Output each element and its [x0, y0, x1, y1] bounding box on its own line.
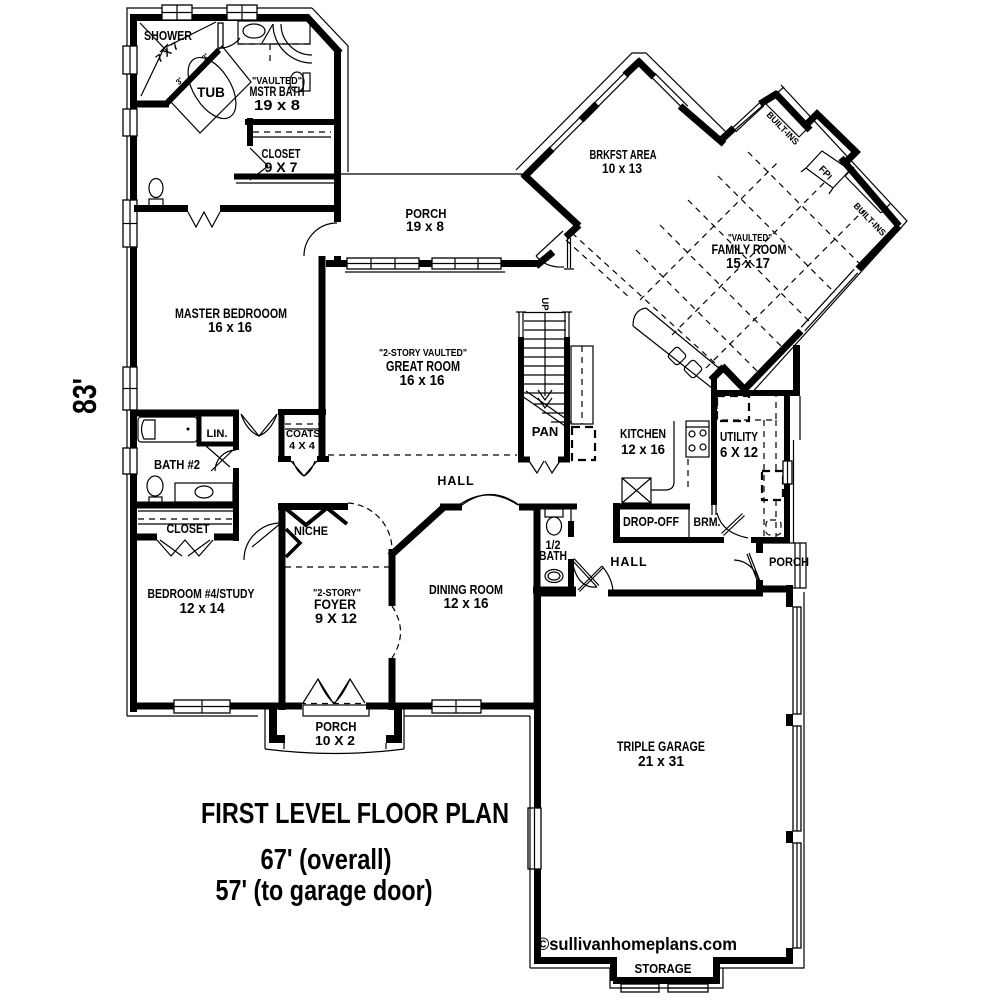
svg-text:BEDROOM #4/STUDY: BEDROOM #4/STUDY: [148, 586, 255, 601]
svg-text:©sullivanhomeplans.com: ©sullivanhomeplans.com: [537, 934, 737, 954]
svg-text:DINING ROOM: DINING ROOM: [429, 582, 503, 597]
svg-text:KITCHEN: KITCHEN: [620, 426, 666, 441]
svg-text:9 X 7: 9 X 7: [265, 159, 298, 175]
svg-text:TUB: TUB: [197, 85, 225, 100]
svg-text:12 x 16: 12 x 16: [444, 596, 489, 612]
svg-text:SHOWER: SHOWER: [144, 29, 192, 43]
svg-text:9 X 12: 9 X 12: [315, 610, 357, 626]
svg-text:67' (overall): 67' (overall): [261, 844, 392, 876]
svg-text:HALL: HALL: [437, 474, 474, 488]
svg-text:16 x 16: 16 x 16: [208, 320, 252, 336]
svg-text:LIN.: LIN.: [207, 428, 228, 440]
svg-text:CLOSET: CLOSET: [167, 522, 210, 536]
svg-text:19 x 8: 19 x 8: [406, 219, 444, 234]
svg-text:10 x 13: 10 x 13: [602, 161, 642, 176]
svg-text:PORCH: PORCH: [316, 720, 357, 734]
svg-text:57' (to garage door): 57' (to garage door): [216, 875, 433, 907]
svg-text:UP: UP: [539, 297, 550, 311]
svg-text:PAN: PAN: [532, 424, 558, 439]
svg-text:TRIPLE GARAGE: TRIPLE GARAGE: [617, 739, 705, 754]
svg-text:10 X 2: 10 X 2: [315, 733, 355, 748]
svg-text:MASTER BEDROOOM: MASTER BEDROOOM: [175, 306, 287, 321]
svg-text:12 x 16: 12 x 16: [621, 441, 665, 457]
svg-text:12 x 14: 12 x 14: [180, 601, 225, 617]
svg-text:BRM.: BRM.: [694, 517, 721, 529]
svg-text:STORAGE: STORAGE: [635, 962, 692, 976]
svg-text:19 x 8: 19 x 8: [254, 97, 300, 114]
svg-text:6 X 12: 6 X 12: [720, 445, 758, 461]
svg-text:BRKFST AREA: BRKFST AREA: [590, 147, 657, 162]
svg-text:4 X 4: 4 X 4: [289, 440, 315, 452]
svg-text:UTILITY: UTILITY: [720, 429, 758, 444]
svg-text:83': 83': [66, 378, 103, 414]
svg-text:"2-STORY VAULTED": "2-STORY VAULTED": [379, 347, 467, 359]
svg-text:NICHE: NICHE: [294, 526, 328, 538]
svg-text:15 x 17: 15 x 17: [726, 255, 770, 272]
svg-text:PORCH: PORCH: [769, 557, 809, 569]
svg-text:16 x 16: 16 x 16: [400, 372, 445, 389]
svg-text:BATH: BATH: [539, 549, 567, 563]
svg-text:BATH #2: BATH #2: [154, 457, 200, 472]
svg-text:21 x 31: 21 x 31: [638, 754, 684, 770]
svg-text:FIRST LEVEL FLOOR PLAN: FIRST LEVEL FLOOR PLAN: [201, 798, 509, 830]
svg-text:COATS: COATS: [286, 429, 320, 440]
svg-text:DROP-OFF: DROP-OFF: [623, 515, 679, 529]
svg-text:HALL: HALL: [610, 555, 647, 569]
